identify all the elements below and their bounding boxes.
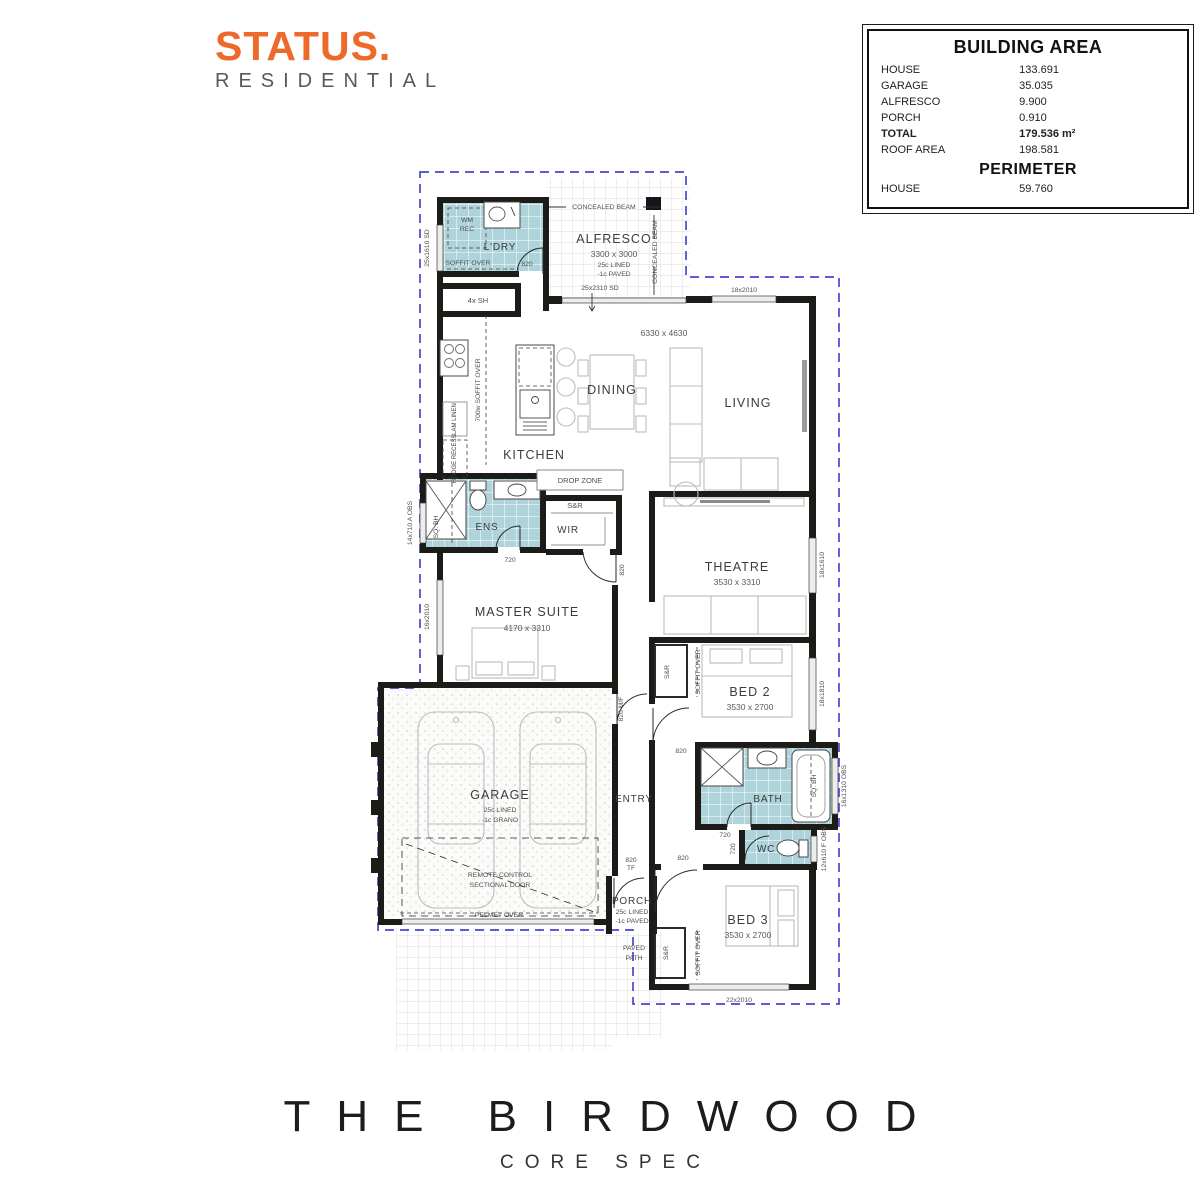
label-window-25x1610: 25x1610 SD	[424, 229, 431, 267]
label-door-720-bath: 720	[719, 832, 731, 839]
brand-logo: STATUS. RESIDENTIAL	[215, 26, 445, 93]
pendant-light	[557, 378, 575, 396]
label-living-dim: 6330 x 4630	[641, 328, 688, 338]
pendant-light	[557, 408, 575, 426]
area-row-roof: ROOF AREA 198.581	[881, 144, 1175, 156]
label-garage: GARAGE	[470, 788, 530, 802]
label-sr-bed3: S&R	[663, 946, 670, 960]
window-bath	[832, 758, 838, 814]
label-window-18x1610: 18x1610	[819, 552, 826, 578]
label-dining: DINING	[587, 383, 637, 397]
label-theatre: THEATRE	[705, 560, 769, 574]
window-theatre	[809, 538, 816, 593]
label-wir: WIR	[557, 525, 579, 536]
label-drop-zone: DROP ZONE	[558, 476, 602, 485]
tv-unit-living	[802, 360, 807, 432]
window-wc	[811, 836, 817, 862]
area-row-label: PORCH	[881, 112, 1019, 124]
area-row-value: 133.691	[1019, 64, 1175, 76]
label-window-14x710: 14x710 A OBS	[407, 500, 414, 545]
label-theatre-dim: 3530 x 3310	[714, 577, 761, 587]
label-window-18x1810: 18x1810	[819, 681, 826, 707]
label-sr-bed2: S&R	[664, 665, 671, 679]
label-lam-linen: LAM LINEN	[452, 403, 458, 435]
label-door-720-wc: 720	[730, 843, 737, 855]
label-bath: BATH	[753, 794, 782, 805]
label-rec: REC	[460, 226, 474, 233]
label-ens: ENS	[476, 522, 499, 533]
label-remote-1: REMOTE CONTROL	[468, 872, 532, 879]
toilet-wc	[777, 840, 799, 856]
label-master: MASTER SUITE	[475, 605, 579, 619]
plan-title-block: THE BIRDWOOD CORE SPEC	[0, 1092, 1200, 1174]
alfresco-column	[646, 197, 661, 210]
label-window-22x2010: 22x2010	[726, 997, 752, 1004]
label-pelmet: PELMET OVER	[475, 912, 523, 919]
label-porch-spec2: -1c PAVED	[615, 918, 648, 925]
label-paved-2: PATH	[625, 955, 642, 962]
plan-labels: L'DRY WM REC SOFFIT OVER 820 4x SH 25x16…	[407, 204, 848, 1004]
label-bed2-dim: 3530 x 2700	[727, 702, 774, 712]
area-row-label: GARAGE	[881, 80, 1019, 92]
floor-plan: L'DRY WM REC SOFFIT OVER 820 4x SH 25x16…	[360, 160, 860, 1060]
label-window-18x2010: 18x2010	[731, 287, 757, 294]
toilet-ens	[470, 490, 486, 510]
area-row-label: ALFRESCO	[881, 96, 1019, 108]
window-ensuite	[420, 503, 426, 543]
window-master	[437, 580, 443, 655]
living-sofa	[670, 348, 778, 506]
area-row-label: TOTAL	[881, 128, 1019, 140]
label-alfresco-dim: 3300 x 3000	[591, 249, 638, 259]
pendant-light	[557, 348, 575, 366]
label-window-12x610: 12x610 F OBS	[821, 826, 828, 871]
label-soffit-700: 700w SOFFIT OVER	[475, 358, 482, 421]
area-row-value: 35.035	[1019, 80, 1175, 92]
label-wm: WM	[461, 217, 473, 224]
area-row-garage: GARAGE 35.035	[881, 80, 1175, 92]
window-laundry	[437, 225, 443, 271]
plan-spec: CORE SPEC	[0, 1152, 1200, 1174]
label-4xsh: 4x SH	[468, 296, 488, 305]
label-alfresco: ALFRESCO	[576, 232, 651, 246]
label-door-820tf-2: TF	[627, 865, 635, 872]
area-row-total: TOTAL 179.536 m²	[881, 128, 1175, 140]
door-master-hall	[583, 552, 616, 582]
label-window-16x2010: 16x2010	[424, 604, 431, 630]
label-door-820tf-1: 820	[625, 857, 637, 864]
door-bed2	[653, 708, 689, 744]
area-row-value: 0.910	[1019, 112, 1175, 124]
theatre-sofa	[664, 596, 806, 634]
label-garage-spec2: -1c GRANO	[482, 817, 518, 824]
label-window-16x1310: 16x1310 OBS	[841, 764, 848, 807]
label-bed2: BED 2	[729, 685, 770, 699]
label-living: LIVING	[725, 396, 772, 410]
label-bed3: BED 3	[727, 913, 768, 927]
wc-fixtures	[777, 840, 808, 857]
label-alfresco-spec2: -1c PAVED	[597, 271, 630, 278]
label-soffit-bed3: SOFFIT OVER	[695, 930, 702, 975]
label-door-820-wir: 820	[619, 564, 626, 576]
label-fridge-recess: FRIDGE RECESS	[452, 434, 458, 483]
label-door-820mf: 820 M/F	[618, 697, 625, 722]
label-door-820-bed2: 820	[675, 748, 687, 755]
area-row-value: 179.536 m²	[1019, 128, 1175, 140]
label-garage-spec1: 25c LINED	[484, 807, 517, 814]
label-porch: PORCH	[612, 896, 652, 907]
label-door-720-ens: 720	[504, 557, 516, 564]
window-bed2	[809, 658, 816, 730]
label-sr-wir: S&R	[567, 501, 583, 510]
plan-name: THE BIRDWOOD	[0, 1092, 1200, 1142]
master-bed	[456, 628, 555, 680]
label-concealed-beam-h: CONCEALED BEAM	[572, 204, 636, 211]
window-living	[712, 296, 776, 302]
area-row-value: 59.760	[1019, 183, 1175, 195]
area-row-value: 198.581	[1019, 144, 1175, 156]
label-door-820-bed3: 820	[677, 855, 689, 862]
label-soffit-ldry: SOFFIT OVER	[445, 260, 490, 267]
window-bed3	[689, 984, 789, 990]
building-area-inner: BUILDING AREA HOUSE 133.691 GARAGE 35.03…	[867, 29, 1189, 209]
area-row-label: HOUSE	[881, 183, 1019, 195]
area-row-label: ROOF AREA	[881, 144, 1019, 156]
brand-name: STATUS.	[215, 26, 445, 67]
area-row-label: HOUSE	[881, 64, 1019, 76]
door-bed3	[655, 870, 697, 912]
label-wc: WC	[757, 844, 775, 855]
area-row-house: HOUSE 133.691	[881, 64, 1175, 76]
label-master-dim: 4170 x 3310	[504, 623, 551, 633]
label-door-820: 820	[521, 261, 533, 268]
label-remote-2: SECTIONAL DOOR	[470, 882, 531, 889]
label-concealed-beam-v: CONCEALED BEAM	[652, 220, 659, 284]
label-alfresco-spec1: 25c LINED	[598, 262, 631, 269]
area-row-value: 9.900	[1019, 96, 1175, 108]
label-sqbh-bath: SQ. BH	[811, 774, 818, 797]
building-area-title: BUILDING AREA	[881, 37, 1175, 58]
cooktop	[440, 340, 468, 376]
building-area-table: BUILDING AREA HOUSE 133.691 GARAGE 35.03…	[862, 24, 1194, 214]
label-bed3-dim: 3530 x 2700	[725, 930, 772, 940]
sliding-door-alfresco	[562, 298, 686, 303]
perimeter-row-house: HOUSE 59.760	[881, 183, 1175, 195]
label-kitchen: KITCHEN	[503, 448, 565, 462]
label-entry: ENTRY	[615, 794, 653, 805]
label-sqbh-ens: SQ. BH	[433, 515, 440, 538]
label-soffit-bed2: SOFFIT OVER	[695, 649, 702, 694]
area-row-porch: PORCH 0.910	[881, 112, 1175, 124]
label-window-25x2310: 25x2310 SD	[581, 285, 619, 292]
label-paved-1: PAVED	[623, 945, 645, 952]
driveway-paving	[396, 928, 612, 1050]
brand-subtitle: RESIDENTIAL	[215, 70, 445, 93]
garage-sectional-door	[402, 919, 594, 924]
perimeter-title: PERIMETER	[881, 161, 1175, 179]
label-porch-spec1: 25c LINED	[616, 909, 649, 916]
area-row-alfresco: ALFRESCO 9.900	[881, 96, 1175, 108]
label-ldry: L'DRY	[484, 242, 516, 253]
